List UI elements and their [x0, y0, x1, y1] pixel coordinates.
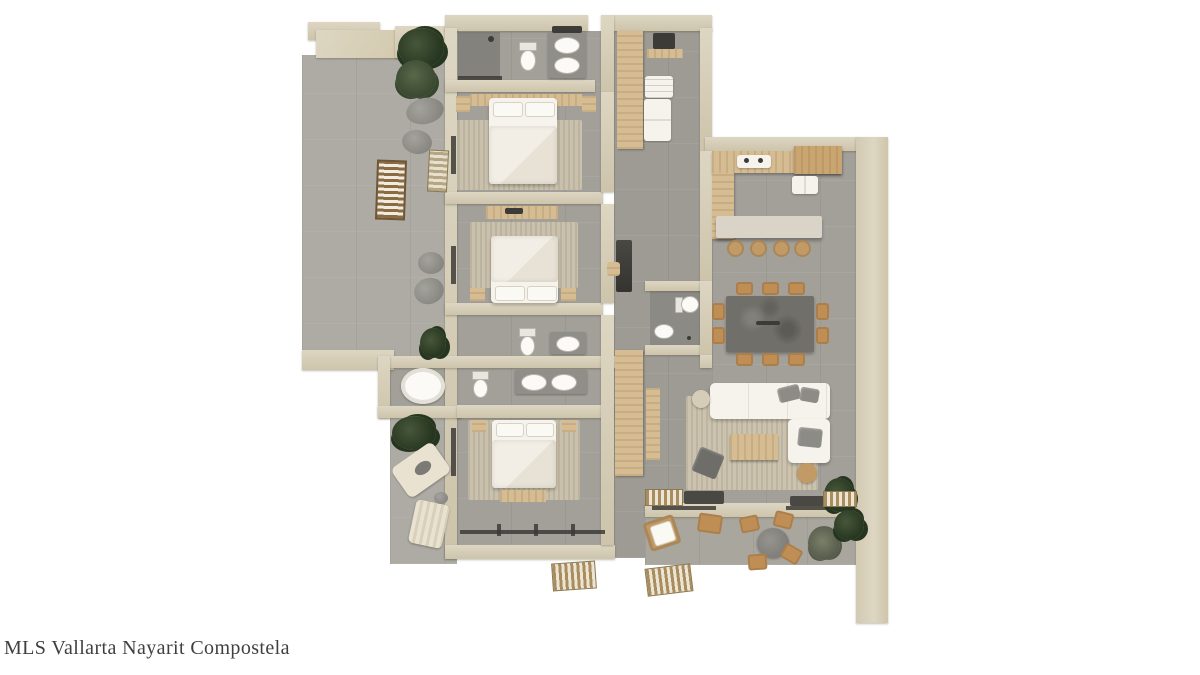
bed1-nightstand-right [582, 96, 596, 112]
powder-sink [654, 324, 674, 339]
bed2-nightstand-left [470, 288, 485, 301]
toilet1-bowl [520, 50, 536, 71]
washer-dryer [644, 99, 671, 141]
bar-stool-1 [727, 240, 744, 257]
dining-chair-top-2 [762, 282, 779, 295]
dining-chair-left-2 [712, 327, 725, 344]
top-wall-right [614, 15, 712, 31]
bar-stool-4 [794, 240, 811, 257]
bed3-terrace-door-frame [451, 428, 456, 476]
bed1-nightstand-left [456, 96, 470, 112]
dining-chair-top-3 [788, 282, 805, 295]
bed1-bed2-wall [445, 192, 603, 204]
shower-head-icon [488, 36, 494, 42]
living-stripe-mat-1 [645, 489, 683, 506]
wood-slat-screen [375, 159, 407, 220]
balcony-plant [834, 510, 864, 540]
living-console [646, 388, 660, 460]
laundry-shelves [645, 76, 673, 98]
bath3-bed3-wall [457, 405, 614, 418]
corridor-wall-2 [601, 204, 614, 303]
bed2-pillow-left [495, 286, 525, 301]
bed3-slider-post-3 [571, 524, 575, 536]
roof-slab-b [316, 30, 402, 58]
bed3-pillow-right [526, 423, 554, 437]
terrace-plant-3 [420, 328, 446, 358]
shower-glass-panel [458, 76, 502, 80]
balcony-chair-small [697, 512, 723, 534]
dining-chair-bottom-3 [788, 353, 805, 366]
doormat-2 [644, 563, 693, 596]
bed1-terrace-door-frame [451, 136, 456, 174]
hall-east-wall-upper [700, 151, 712, 281]
powder-toilet-bowl [681, 296, 699, 313]
living-door-track [790, 496, 824, 506]
bed3-foot-bench [500, 490, 546, 502]
bath2-sink [556, 336, 580, 352]
bed2-nightstand-right [561, 288, 576, 301]
balcony-chair-3 [747, 553, 767, 570]
coffee-table [730, 434, 778, 460]
bed1-pillow-right [525, 102, 555, 117]
bed3-nightstand-left [472, 420, 486, 432]
living-dark-mat [684, 491, 724, 504]
terrace-rock-3 [418, 252, 444, 274]
bath3-sink-1 [521, 374, 547, 391]
utility-sink [653, 33, 675, 49]
bed1-duvet [489, 126, 557, 184]
laundry-counter [647, 49, 683, 58]
sofa-pillow-2 [799, 386, 820, 403]
powder-bottom-wall [645, 345, 702, 355]
bath1-sink-1 [554, 37, 580, 54]
hall-stool [607, 262, 620, 276]
laundry-east-wall [700, 28, 712, 151]
entry-wardrobe [617, 31, 643, 149]
dining-chair-top-1 [736, 282, 753, 295]
side-table-wood [797, 463, 817, 483]
bed2-terrace-door-frame [451, 246, 456, 284]
side-table-round [692, 390, 710, 408]
dining-chair-bottom-1 [736, 353, 753, 366]
dining-chair-bottom-2 [762, 353, 779, 366]
bar-stool-2 [750, 240, 767, 257]
bed3-pillow-left [496, 423, 524, 437]
bed3-nightstand-right [562, 420, 576, 432]
bath2-bath3-wall [390, 356, 615, 368]
living-stripe-mat-2 [823, 491, 857, 507]
terrace-plant-2 [396, 60, 436, 98]
bathtub [401, 368, 445, 404]
bar-stool-3 [773, 240, 790, 257]
bed2-bath2-wall [445, 303, 603, 315]
corridor-wall-1 [601, 92, 614, 192]
right-outer-wall [856, 137, 888, 623]
toilet2-bowl [520, 336, 535, 356]
hall-east-wall-lower [700, 355, 712, 368]
hall-closet [615, 350, 643, 476]
bath3-sink-2 [551, 374, 577, 391]
oven [792, 176, 818, 194]
bath1-right-wall [601, 15, 614, 92]
toilet3-bowl [473, 379, 488, 398]
bed3-slider-post-1 [497, 524, 501, 536]
bed2-pillow-right [527, 286, 557, 301]
dining-chair-right-2 [816, 327, 829, 344]
living-slider-frame-1 [652, 506, 716, 510]
terrace-rock-5 [434, 492, 448, 504]
bed2-dresser-item [505, 208, 523, 214]
kitchen-sink [737, 155, 771, 168]
floor-plan-render: MLS Vallarta Nayarit Compostela [0, 0, 1200, 675]
powder-drain [687, 336, 691, 340]
dining-chair-right-1 [816, 303, 829, 320]
powder-top-wall [645, 281, 702, 291]
bath1-sink-2 [554, 57, 580, 74]
bed3-slider-rail [460, 530, 605, 534]
bath1-mirror [552, 26, 582, 33]
doormat-1 [551, 560, 597, 591]
range-hood [794, 146, 842, 174]
dining-chair-left-1 [712, 303, 725, 320]
bed2-duvet [491, 236, 558, 282]
corridor-wall-3 [601, 315, 614, 545]
watermark-text: MLS Vallarta Nayarit Compostela [4, 637, 290, 660]
bed3-duvet [492, 440, 556, 488]
powder-right-wall [700, 281, 712, 355]
bed3-slider-post-2 [534, 524, 538, 536]
bath1-bottom-wall [445, 80, 595, 92]
bed1-pillow-left [493, 102, 523, 117]
sofa-pillow-3 [797, 427, 823, 448]
kitchen-island [716, 216, 822, 238]
kitchen-faucet [744, 158, 749, 163]
dining-centerpiece [756, 321, 780, 325]
bedwing-bottom-wall [445, 545, 615, 559]
terrace-small-mat [427, 150, 449, 193]
kitchen-faucet-2 [758, 158, 763, 163]
